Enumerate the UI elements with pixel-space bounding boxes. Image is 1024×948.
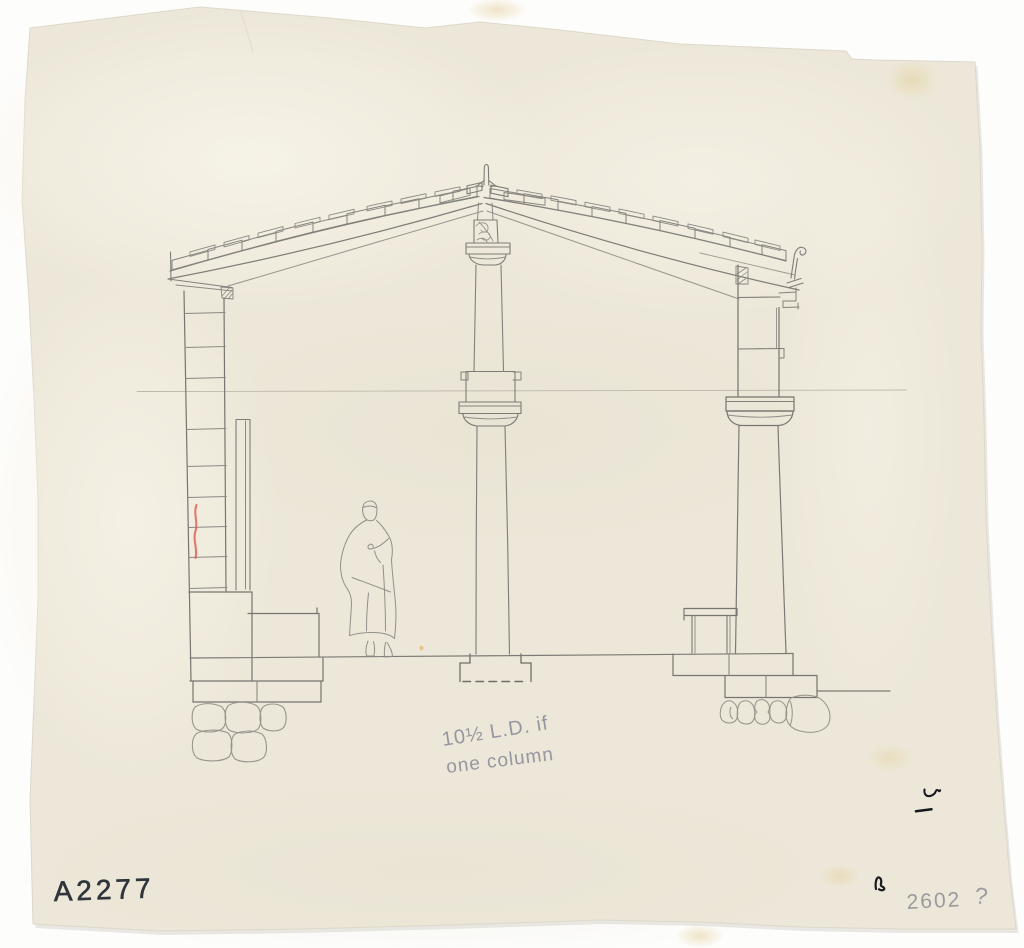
svg-text:?: ? [973,882,988,909]
svg-text:2602: 2602 [906,888,962,914]
svg-text:A2277: A2277 [53,872,155,907]
